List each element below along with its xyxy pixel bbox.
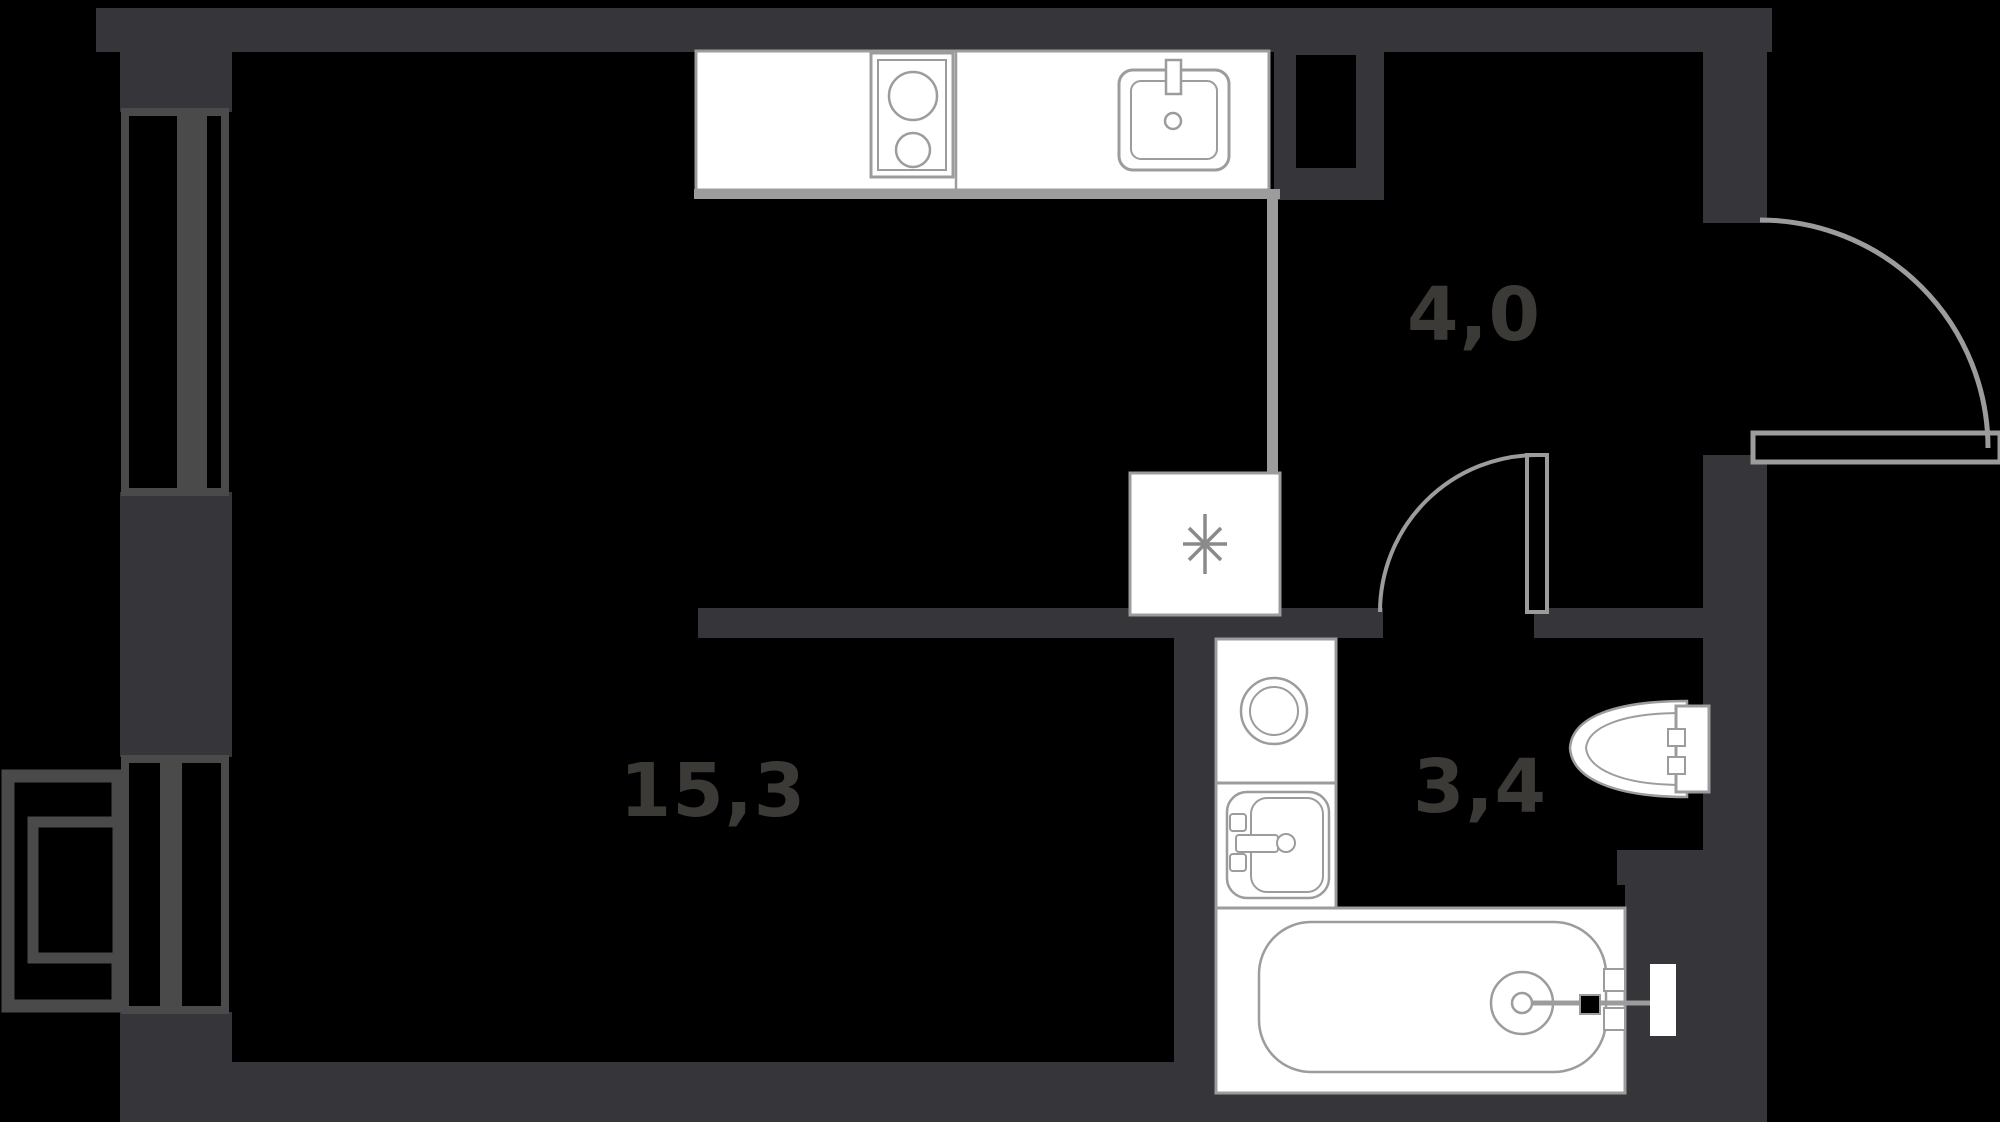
hallway-area-label: 4,0 bbox=[1407, 272, 1541, 358]
kitchen-drain-icon bbox=[1165, 113, 1181, 129]
toilet-hinge-bottom bbox=[1668, 757, 1685, 774]
wall-bottom-main bbox=[120, 1062, 1216, 1122]
bathroom-door-leaf bbox=[1527, 455, 1547, 612]
kitchen-zone-partition bbox=[1267, 195, 1278, 473]
balcony-door-mullion bbox=[160, 763, 182, 1006]
shower-wall-niche bbox=[1650, 964, 1676, 1036]
ventilation-shaft-opening bbox=[1296, 55, 1356, 168]
sink-tap-handle-bottom bbox=[1230, 854, 1246, 871]
entrance-door-leaf bbox=[1753, 433, 2000, 462]
wall-toilet-step bbox=[1617, 850, 1710, 885]
wall-right-lower bbox=[1703, 455, 1767, 1122]
floor-plan-canvas: 15,3 4,0 3,4 bbox=[0, 0, 2000, 1122]
sink-faucet-icon bbox=[1236, 835, 1278, 852]
kitchen-faucet-icon bbox=[1166, 60, 1181, 94]
sink-tap-handle-top bbox=[1230, 814, 1246, 831]
wall-left-upper bbox=[120, 8, 232, 112]
wall-bathroom-left bbox=[1174, 608, 1216, 1093]
washing-machine bbox=[1216, 639, 1336, 783]
wall-top bbox=[96, 8, 1772, 52]
shower-mixer-block bbox=[1580, 995, 1600, 1014]
balcony-inner bbox=[33, 822, 118, 958]
wall-left-mid bbox=[120, 492, 232, 757]
window-frame-upper bbox=[125, 112, 225, 492]
bathroom-area-label: 3,4 bbox=[1413, 744, 1547, 830]
shower-valve-bottom bbox=[1604, 1008, 1625, 1030]
toilet-tank bbox=[1676, 706, 1709, 792]
sink-faucet-spout-icon bbox=[1277, 834, 1295, 852]
wall-right-upper bbox=[1703, 8, 1767, 223]
toilet-hinge-top bbox=[1668, 729, 1685, 746]
living-kitchen-area-label: 15,3 bbox=[620, 748, 807, 834]
window-mullion-upper bbox=[177, 116, 207, 488]
shower-valve-top bbox=[1604, 969, 1625, 991]
wall-mid-right bbox=[1534, 608, 1703, 638]
